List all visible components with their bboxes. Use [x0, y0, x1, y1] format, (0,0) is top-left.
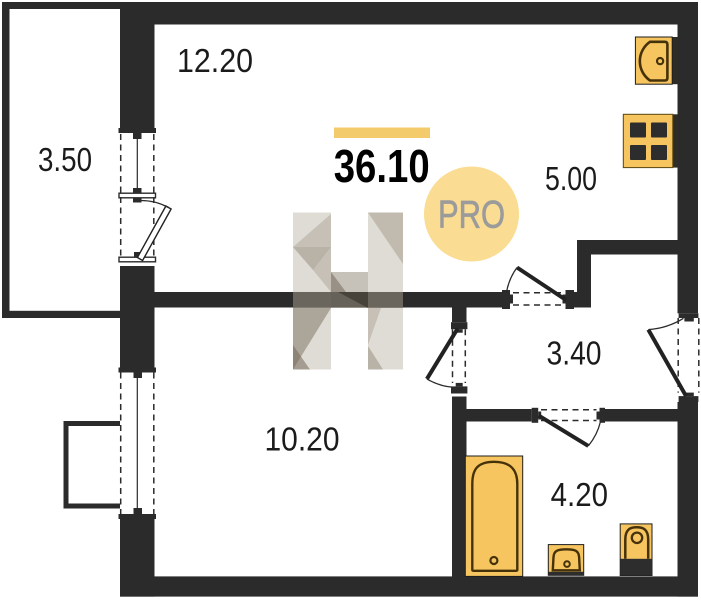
svg-text:12.20: 12.20 [177, 42, 253, 79]
svg-text:PRO: PRO [438, 194, 505, 237]
svg-text:4.20: 4.20 [551, 476, 608, 513]
svg-text:3.50: 3.50 [38, 141, 92, 178]
svg-text:36.10: 36.10 [334, 140, 430, 192]
svg-text:5.00: 5.00 [545, 160, 597, 197]
svg-text:10.20: 10.20 [265, 421, 340, 458]
svg-text:3.40: 3.40 [547, 335, 602, 372]
